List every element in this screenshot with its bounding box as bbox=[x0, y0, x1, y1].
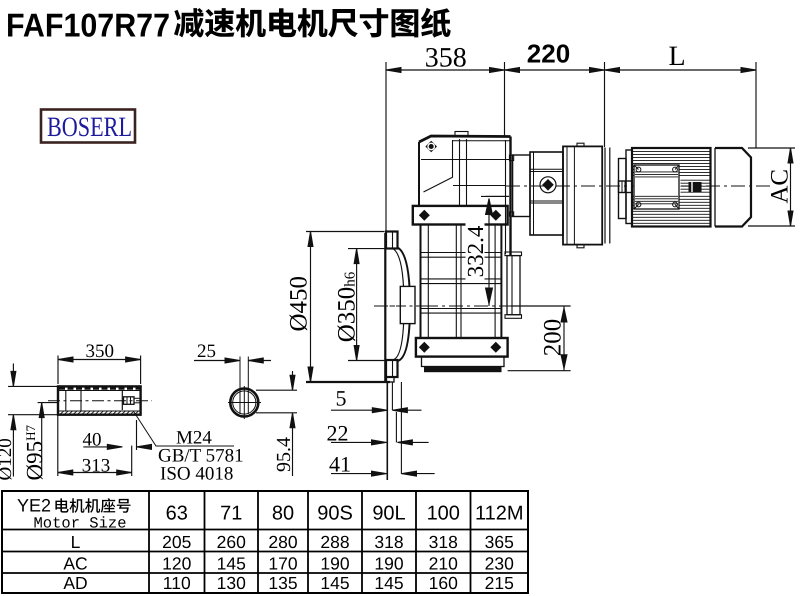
svg-text:332.4: 332.4 bbox=[463, 225, 488, 277]
svg-text:110: 110 bbox=[163, 573, 191, 593]
svg-text:200: 200 bbox=[539, 319, 566, 357]
svg-text:120: 120 bbox=[162, 553, 191, 573]
svg-text:40: 40 bbox=[83, 430, 102, 451]
svg-text:BOSERL: BOSERL bbox=[47, 112, 132, 143]
svg-text:AC: AC bbox=[767, 169, 794, 204]
svg-text:100: 100 bbox=[427, 502, 460, 524]
svg-text:318: 318 bbox=[374, 532, 403, 552]
svg-text:90L: 90L bbox=[372, 502, 405, 524]
svg-text:25: 25 bbox=[197, 341, 216, 362]
svg-text:230: 230 bbox=[485, 553, 514, 573]
svg-text:FAF107R77: FAF107R77 bbox=[6, 7, 170, 44]
svg-text:71: 71 bbox=[220, 502, 242, 524]
svg-text:280: 280 bbox=[268, 532, 297, 552]
svg-text:AD: AD bbox=[63, 573, 87, 593]
svg-text:Ø450: Ø450 bbox=[286, 276, 313, 332]
svg-text:170: 170 bbox=[268, 553, 297, 573]
svg-text:ISO 4018: ISO 4018 bbox=[160, 464, 233, 485]
svg-text:190: 190 bbox=[320, 553, 349, 573]
svg-text:145: 145 bbox=[374, 573, 403, 593]
svg-text:90S: 90S bbox=[317, 502, 353, 524]
svg-text:350: 350 bbox=[85, 341, 114, 362]
svg-text:135: 135 bbox=[268, 573, 297, 593]
svg-text:205: 205 bbox=[162, 532, 191, 552]
svg-text:220: 220 bbox=[527, 39, 570, 69]
svg-text:318: 318 bbox=[429, 532, 458, 552]
svg-text:41: 41 bbox=[329, 452, 351, 477]
svg-text:112M: 112M bbox=[475, 502, 524, 524]
svg-text:313: 313 bbox=[82, 455, 111, 476]
svg-text:130: 130 bbox=[217, 573, 246, 593]
svg-text:Motor Size: Motor Size bbox=[33, 515, 126, 533]
svg-text:210: 210 bbox=[429, 553, 458, 573]
svg-text:215: 215 bbox=[485, 573, 514, 593]
svg-text:190: 190 bbox=[374, 553, 403, 573]
svg-text:L: L bbox=[668, 41, 685, 72]
svg-text:5: 5 bbox=[336, 386, 347, 411]
svg-text:260: 260 bbox=[217, 532, 246, 552]
svg-text:63: 63 bbox=[166, 502, 188, 524]
svg-text:160: 160 bbox=[429, 573, 458, 593]
svg-text:145: 145 bbox=[217, 553, 246, 573]
svg-text:YE2: YE2 bbox=[17, 496, 51, 516]
svg-text:288: 288 bbox=[320, 532, 349, 552]
svg-text:95.4: 95.4 bbox=[273, 437, 295, 472]
svg-text:365: 365 bbox=[485, 532, 514, 552]
svg-text:22: 22 bbox=[327, 421, 349, 446]
svg-text:80: 80 bbox=[272, 502, 294, 524]
svg-text:145: 145 bbox=[320, 573, 349, 593]
svg-text:358: 358 bbox=[425, 42, 467, 73]
svg-text:L: L bbox=[71, 532, 81, 552]
svg-text:AC: AC bbox=[63, 553, 87, 573]
svg-text:Ø120: Ø120 bbox=[0, 438, 16, 480]
